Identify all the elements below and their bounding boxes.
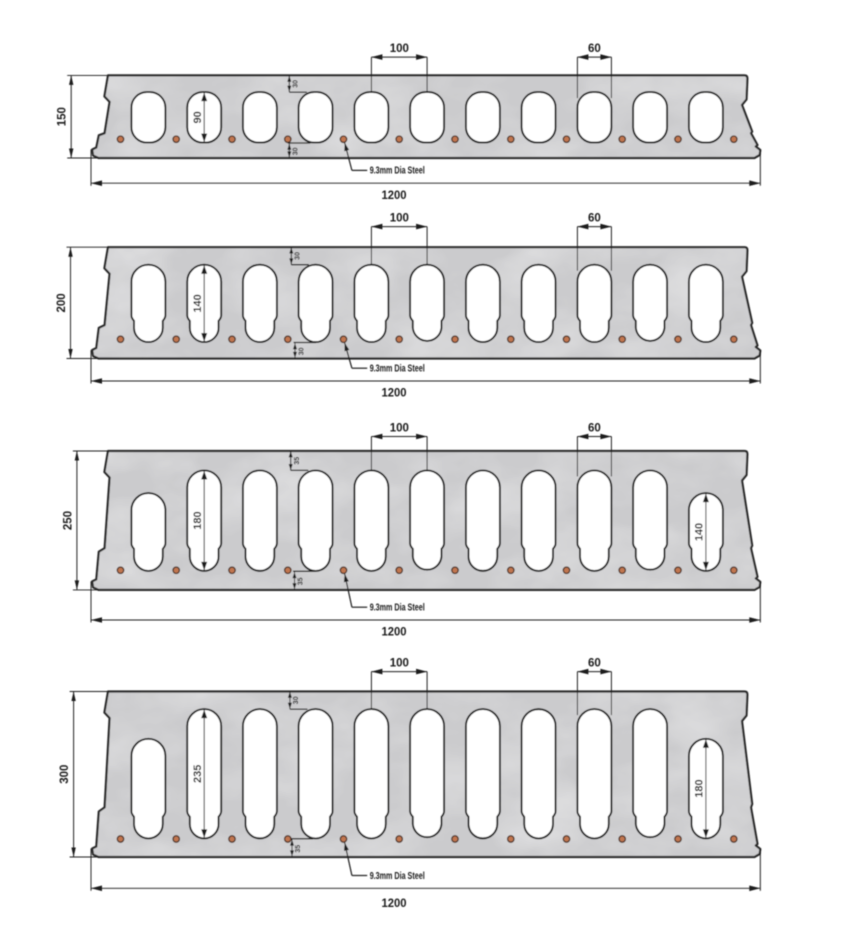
svg-text:100: 100 <box>390 43 409 55</box>
svg-text:9.3mm Dia Steel: 9.3mm Dia Steel <box>370 166 425 177</box>
svg-text:180: 180 <box>694 779 706 797</box>
svg-text:1200: 1200 <box>382 627 407 639</box>
svg-text:1200: 1200 <box>382 190 407 202</box>
svg-text:9.3mm Dia Steel: 9.3mm Dia Steel <box>370 364 425 375</box>
svg-text:60: 60 <box>588 213 601 225</box>
svg-text:200: 200 <box>56 293 68 312</box>
svg-text:30: 30 <box>298 347 305 355</box>
svg-text:30: 30 <box>293 80 300 88</box>
svg-text:60: 60 <box>588 658 601 670</box>
svg-text:30: 30 <box>293 696 300 704</box>
svg-text:1200: 1200 <box>382 388 407 400</box>
svg-text:60: 60 <box>588 423 601 435</box>
svg-text:235: 235 <box>192 765 204 783</box>
svg-text:30: 30 <box>295 252 302 260</box>
svg-text:140: 140 <box>694 523 706 541</box>
svg-text:30: 30 <box>293 147 300 155</box>
svg-text:35: 35 <box>294 457 301 465</box>
svg-text:100: 100 <box>390 658 409 670</box>
svg-text:1200: 1200 <box>382 898 407 910</box>
svg-text:180: 180 <box>192 511 204 529</box>
svg-text:250: 250 <box>62 511 74 530</box>
svg-text:9.3mm Dia Steel: 9.3mm Dia Steel <box>370 871 425 882</box>
svg-text:35: 35 <box>295 845 302 853</box>
svg-text:100: 100 <box>390 213 409 225</box>
svg-text:140: 140 <box>192 294 204 312</box>
svg-text:300: 300 <box>59 765 71 784</box>
svg-text:150: 150 <box>57 107 69 126</box>
svg-text:90: 90 <box>192 111 204 123</box>
svg-text:60: 60 <box>588 43 601 55</box>
svg-text:35: 35 <box>298 577 305 585</box>
svg-text:9.3mm Dia Steel: 9.3mm Dia Steel <box>370 603 425 614</box>
svg-text:100: 100 <box>390 423 409 435</box>
